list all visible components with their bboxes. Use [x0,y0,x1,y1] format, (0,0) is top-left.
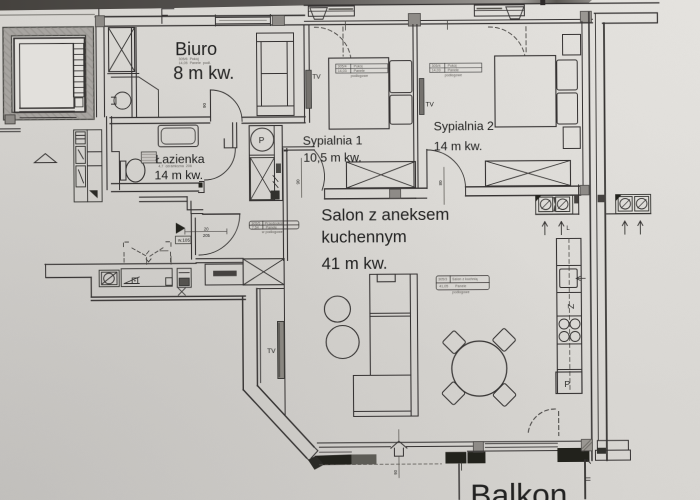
svg-text:Pokój: Pokój [448,64,457,68]
svg-text:P: P [259,135,265,145]
svg-text:205: 205 [203,233,211,238]
svg-text:Salon z kuchnią: Salon z kuchnią [452,277,477,281]
svg-text:20: 20 [204,226,209,231]
svg-text:Sypialnia 1: Sypialnia 1 [303,133,363,147]
svg-text:Panele: Panele [448,68,459,72]
svg-text:w podłogowe: w podłogowe [262,230,283,234]
svg-text:TV: TV [425,101,434,108]
svg-text:14,03: 14,03 [432,68,441,72]
svg-text:8 m kw.: 8 m kw. [173,63,234,83]
svg-text:podłogowe: podłogowe [351,74,368,78]
svg-text:Salon z aneksem: Salon z aneksem [321,205,449,225]
svg-text:podłogowe: podłogowe [445,73,462,77]
svg-text:305/4: 305/4 [338,65,347,69]
svg-text:Panele: Panele [266,226,277,230]
svg-text:TV: TV [312,74,321,81]
svg-text:305/4: 305/4 [432,64,441,68]
svg-text:P: P [564,379,570,389]
svg-text:Sypialnia 2: Sypialnia 2 [434,119,494,133]
svg-text:Balkon: Balkon [470,476,567,500]
svg-text:Panele: Panele [455,284,466,288]
svg-text:podłogowe: podłogowe [452,290,469,294]
svg-text:Z: Z [566,304,576,309]
svg-text:4,7 ceramiczna 206: 4,7 ceramiczna 206 [158,164,192,168]
svg-text:10,5 m kw.: 10,5 m kw. [303,150,361,164]
svg-text:kuchennym: kuchennym [321,227,406,247]
svg-text:41 m kw.: 41 m kw. [322,254,388,273]
svg-text:305/3: 305/3 [438,277,447,281]
svg-text:7,54: 7,54 [252,226,259,230]
svg-text:Panele: Panele [354,69,365,73]
svg-text:TV: TV [267,348,276,355]
svg-text:14,05 Panele podł.: 14,05 Panele podł. [179,61,211,65]
svg-text:14,03: 14,03 [338,69,347,73]
svg-text:41,05: 41,05 [439,284,448,288]
svg-text:Pokój: Pokój [354,64,363,68]
svg-text:90: 90 [202,102,207,108]
svg-text:90: 90 [393,469,398,474]
svg-text:80: 80 [438,180,443,186]
svg-text:14 m kw.: 14 m kw. [434,139,483,153]
svg-text:w.105: w.105 [178,238,190,243]
svg-text:90: 90 [296,179,301,185]
svg-text:14 m kw.: 14 m kw. [154,168,203,182]
